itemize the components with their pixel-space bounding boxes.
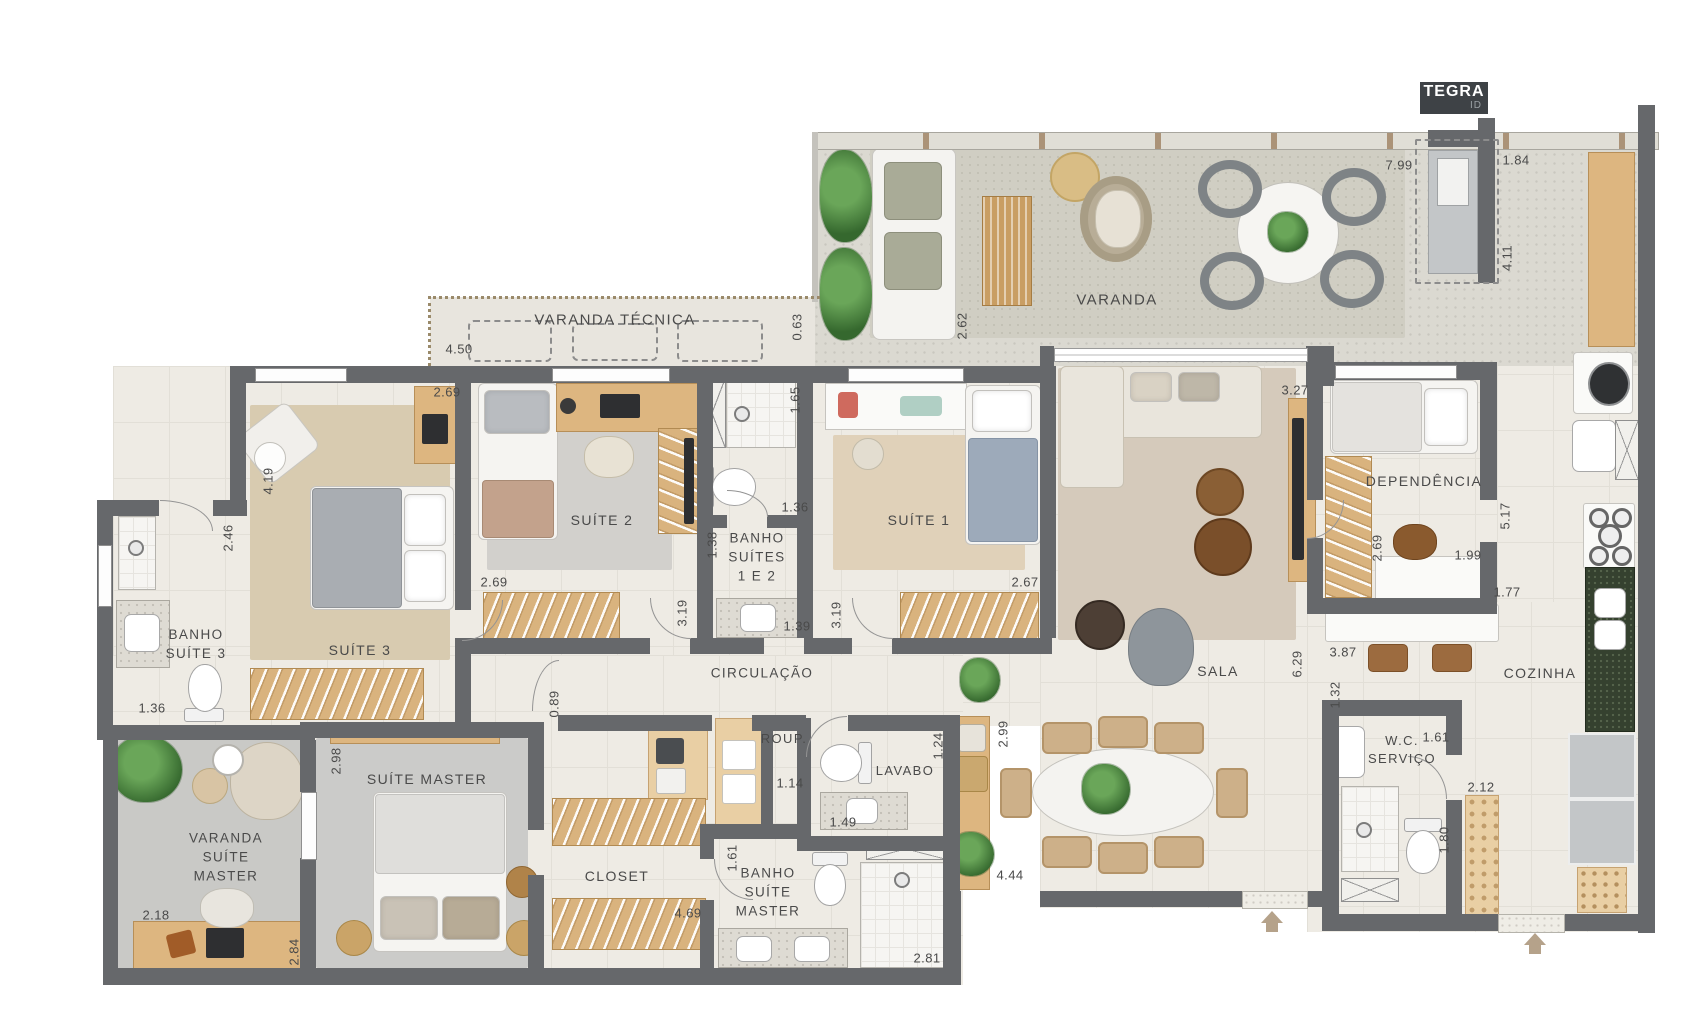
wall xyxy=(528,722,544,830)
suite3-window xyxy=(255,368,347,382)
dining-chair xyxy=(1198,160,1262,218)
laptop xyxy=(206,928,244,958)
varanda-tecnica-fence xyxy=(428,296,431,366)
dining-chair xyxy=(1000,768,1032,818)
dimension-label: 3.87 xyxy=(1330,645,1357,660)
wall xyxy=(1563,914,1655,931)
wall xyxy=(690,638,764,654)
dimension-label: 2.46 xyxy=(221,525,236,552)
plant xyxy=(960,658,1000,702)
suite3-wardrobe xyxy=(250,668,424,720)
dimension-label: 1.14 xyxy=(777,776,804,791)
closet-wardrobe xyxy=(552,798,706,846)
blanket xyxy=(312,488,402,608)
sink xyxy=(124,614,160,652)
dimension-label: 1.39 xyxy=(784,619,811,634)
wall xyxy=(103,725,315,740)
pillow xyxy=(972,390,1032,432)
dimension-label: 1.61 xyxy=(1423,730,1450,745)
kitchen-sink xyxy=(1594,588,1626,618)
dimension-label: 2.18 xyxy=(143,908,170,923)
service-entrance-arrow xyxy=(1524,933,1546,954)
room-label-circulacao: CIRCULAÇÃO xyxy=(711,665,814,684)
room-label-banho-suites-1e2: BANHO SUÍTES 1 E 2 xyxy=(728,530,785,587)
dimension-label: 2.12 xyxy=(1468,780,1495,795)
hall-cabinet xyxy=(1465,795,1499,915)
dimension-label: 3.27 xyxy=(1282,383,1309,398)
tv xyxy=(1292,418,1304,560)
shower-head-icon xyxy=(128,540,144,556)
dimension-label: 2.69 xyxy=(1370,535,1385,562)
dimension-label: 1.65 xyxy=(788,387,803,414)
closet-drawers xyxy=(656,738,684,764)
dimension-label: 2.98 xyxy=(329,748,344,775)
room-label-banho-suite-master: BANHO SUÍTE MASTER xyxy=(736,865,801,922)
wall xyxy=(97,500,159,516)
room-label-closet: CLOSET xyxy=(585,867,649,887)
desk-chair xyxy=(200,888,254,928)
pillow xyxy=(484,390,550,434)
dimension-label: 1.61 xyxy=(725,845,740,872)
tv xyxy=(684,438,694,524)
room-label-dependencia: DEPENDÊNCIA xyxy=(1366,472,1483,492)
wall xyxy=(103,968,961,985)
service-counter xyxy=(1588,152,1635,347)
wc-toilet xyxy=(1406,830,1440,874)
dining-chair xyxy=(1154,836,1204,868)
sala-armchair xyxy=(1128,608,1194,686)
pillow xyxy=(404,494,446,546)
dependencia-window xyxy=(1335,365,1457,379)
dimension-label: 1.38 xyxy=(705,532,720,559)
dimension-label: 2.69 xyxy=(434,385,461,400)
dimension-label: 2.99 xyxy=(996,721,1011,748)
wall xyxy=(943,715,960,985)
wall xyxy=(1322,914,1498,931)
dining-chair xyxy=(1042,836,1092,868)
dimension-label: 1.36 xyxy=(782,500,809,515)
desk-lamp xyxy=(560,398,576,414)
room-label-suite-1: SUÍTE 1 xyxy=(888,511,951,531)
freezer xyxy=(1568,799,1636,865)
dimension-label: 1.49 xyxy=(830,815,857,830)
sink xyxy=(794,936,830,962)
blanket xyxy=(482,480,554,538)
dining-chair xyxy=(1320,250,1384,308)
suite2-chair xyxy=(584,436,634,478)
dimension-label: 4.69 xyxy=(675,906,702,921)
round-coffee-table xyxy=(1194,518,1252,576)
wall xyxy=(300,740,316,792)
sala-sliding-glass-door xyxy=(1054,348,1308,362)
sofa-cushion xyxy=(884,232,942,290)
dimension-label: 4.11 xyxy=(1500,245,1515,271)
dimension-label: 4.44 xyxy=(997,868,1024,883)
dimension-label: 2.81 xyxy=(914,951,941,966)
counter-stool xyxy=(1368,644,1408,672)
dining-chair xyxy=(1098,716,1148,748)
pillow xyxy=(442,896,500,940)
pouf xyxy=(852,438,884,470)
laundry-tank xyxy=(1572,420,1616,472)
lounge-cushion xyxy=(1095,190,1141,248)
ac-enclosure-outline xyxy=(1415,139,1499,284)
tegra-logo: TEGRA ID xyxy=(1420,82,1488,114)
wall xyxy=(300,858,316,968)
varanda-rail xyxy=(812,132,818,302)
dimension-label: 1.77 xyxy=(1494,585,1521,600)
marble-side-table xyxy=(1075,600,1125,650)
linen-stack xyxy=(722,740,756,770)
arrow-head-icon xyxy=(1261,911,1283,923)
linen-stack xyxy=(722,774,756,804)
pillow xyxy=(380,896,438,940)
dimension-label: 1.99 xyxy=(1455,548,1482,563)
fridge xyxy=(1568,733,1636,799)
varanda-tecnica-fence xyxy=(428,296,820,299)
dimension-label: 1.36 xyxy=(139,701,166,716)
room-label-banho-suite-3: BANHO SUÍTE 3 xyxy=(166,626,227,664)
room-label-cozinha: COZINHA xyxy=(1504,664,1577,684)
blanket xyxy=(968,438,1038,542)
laptop xyxy=(600,394,640,418)
dimension-label: 3.19 xyxy=(829,602,844,629)
wall xyxy=(848,715,945,731)
banho3-toilet xyxy=(188,664,222,712)
wall xyxy=(528,875,544,968)
counter-stool xyxy=(1432,644,1472,672)
sofa-cushion xyxy=(884,162,942,220)
varanda-master-glass-door xyxy=(301,792,317,860)
service-entrance-sill xyxy=(1498,914,1565,933)
wall xyxy=(697,515,727,528)
wall xyxy=(1322,700,1339,916)
room-label-varanda-tecnica: VARANDA TÉCNICA xyxy=(534,310,695,331)
dining-chair xyxy=(1322,168,1386,226)
dimension-label: 1.84 xyxy=(1503,153,1530,168)
dimension-label: 2.69 xyxy=(481,575,508,590)
shower-head-icon xyxy=(1356,822,1372,838)
dimension-label: 2.84 xyxy=(287,939,302,966)
room-label-lavabo: LAVABO xyxy=(876,762,935,780)
stove-burner xyxy=(1589,546,1609,566)
wall xyxy=(1322,700,1462,716)
dining-chair xyxy=(1216,768,1248,818)
floor-plan: TEGRA ID VARANDA TÉCNICAVARANDASUÍTE 3BA… xyxy=(0,0,1702,1029)
wall xyxy=(892,638,1052,654)
wall xyxy=(1480,542,1497,614)
sink xyxy=(736,936,772,962)
plant xyxy=(820,150,872,242)
dimension-label: 6.29 xyxy=(1290,651,1305,678)
kitchen-sink xyxy=(1594,620,1626,650)
wall xyxy=(804,638,852,654)
sink xyxy=(740,604,776,632)
room-label-suite-2: SUÍTE 2 xyxy=(571,511,634,531)
laptop xyxy=(422,414,448,444)
pillow xyxy=(404,550,446,602)
room-label-varanda: VARANDA xyxy=(1076,290,1157,311)
sala-sofa-chaise xyxy=(1060,366,1124,488)
blanket xyxy=(1332,382,1422,452)
plant xyxy=(112,736,182,802)
logo-brand-text: TEGRA xyxy=(1420,82,1488,102)
suite2-window xyxy=(552,368,670,382)
wall xyxy=(700,824,800,839)
wall xyxy=(558,715,712,731)
console-tray xyxy=(958,724,986,752)
suite1-window xyxy=(848,368,964,382)
wall xyxy=(1040,891,1242,907)
wall xyxy=(455,638,650,654)
arrow-stem xyxy=(1529,945,1541,954)
wall xyxy=(1480,362,1497,500)
logo-sub-text: ID xyxy=(1420,102,1488,110)
dimension-label: 5.17 xyxy=(1498,503,1513,530)
room-label-sala: SALA xyxy=(1197,662,1238,682)
wall xyxy=(1446,800,1462,916)
wall xyxy=(1307,362,1323,500)
room-label-roup: ROUP. xyxy=(761,730,808,748)
shower-head-icon xyxy=(734,406,750,422)
desk-decor xyxy=(838,392,858,418)
dining-chair xyxy=(1042,722,1092,754)
dining-chair xyxy=(1098,842,1148,874)
arrow-stem xyxy=(1266,923,1278,932)
banho3-window xyxy=(98,545,112,607)
wall xyxy=(812,132,1659,150)
stove-burner xyxy=(1612,546,1632,566)
wall xyxy=(103,725,118,985)
dining-chair xyxy=(1200,252,1264,310)
side-table xyxy=(212,744,244,776)
wall xyxy=(97,500,113,740)
wall xyxy=(1040,366,1056,638)
table-centerpiece-plant xyxy=(1082,764,1130,814)
stove-burner xyxy=(1598,524,1622,548)
room-label-varanda-suite-master: VARANDA SUÍTE MASTER xyxy=(189,830,263,887)
dimension-label: 1.32 xyxy=(1328,682,1343,709)
dining-chair xyxy=(1154,722,1204,754)
dimension-label: 0.89 xyxy=(547,691,562,718)
table-centerpiece-plant xyxy=(1268,212,1308,252)
dimension-label: 4.50 xyxy=(446,342,473,357)
room-label-suite-3: SUÍTE 3 xyxy=(329,641,392,661)
room-label-suite-master: SUÍTE MASTER xyxy=(367,770,487,790)
console-tray xyxy=(956,756,988,792)
wall xyxy=(1307,538,1323,604)
shaft xyxy=(1615,420,1639,480)
sofa-cushion xyxy=(1178,372,1220,402)
dimension-label: 1.24 xyxy=(931,733,946,760)
dimension-label: 3.19 xyxy=(675,600,690,627)
wall xyxy=(767,515,813,528)
dimension-label: 4.19 xyxy=(261,468,276,495)
suite1-wardrobe xyxy=(900,592,1039,640)
washer-door xyxy=(1588,362,1630,406)
oven-cabinet xyxy=(1577,867,1627,913)
dimension-label: 1.80 xyxy=(1437,827,1452,854)
dimension-label: 0.63 xyxy=(790,314,805,341)
suite2-wardrobe xyxy=(483,592,620,640)
dimension-label: 2.62 xyxy=(955,313,970,340)
pillow xyxy=(1424,388,1468,446)
wall xyxy=(797,836,943,851)
social-entrance-sill xyxy=(1242,891,1308,909)
blanket xyxy=(375,794,505,874)
dimension-label: 7.99 xyxy=(1386,158,1413,173)
dimension-label: 2.67 xyxy=(1012,575,1039,590)
wall xyxy=(1307,598,1482,614)
social-entrance-arrow xyxy=(1261,911,1283,932)
wall xyxy=(300,722,528,738)
dependencia-chair xyxy=(1393,524,1437,560)
dependencia-desk xyxy=(1375,556,1485,602)
wc-bench xyxy=(1341,878,1399,902)
plant xyxy=(820,248,872,340)
wall xyxy=(1638,105,1655,933)
banho-master-toilet xyxy=(814,864,846,906)
wall xyxy=(1446,700,1462,755)
desk-decor xyxy=(900,396,942,416)
wall xyxy=(697,373,713,638)
round-side-table xyxy=(1196,468,1244,516)
closet-drawers xyxy=(656,768,686,794)
wall xyxy=(700,900,714,970)
slat-coffee-table xyxy=(982,196,1032,306)
nightstand xyxy=(336,920,372,956)
shower-head-icon xyxy=(894,872,910,888)
sofa-cushion xyxy=(1130,372,1172,402)
wall xyxy=(230,366,246,516)
arrow-head-icon xyxy=(1524,933,1546,945)
wall xyxy=(455,366,471,610)
